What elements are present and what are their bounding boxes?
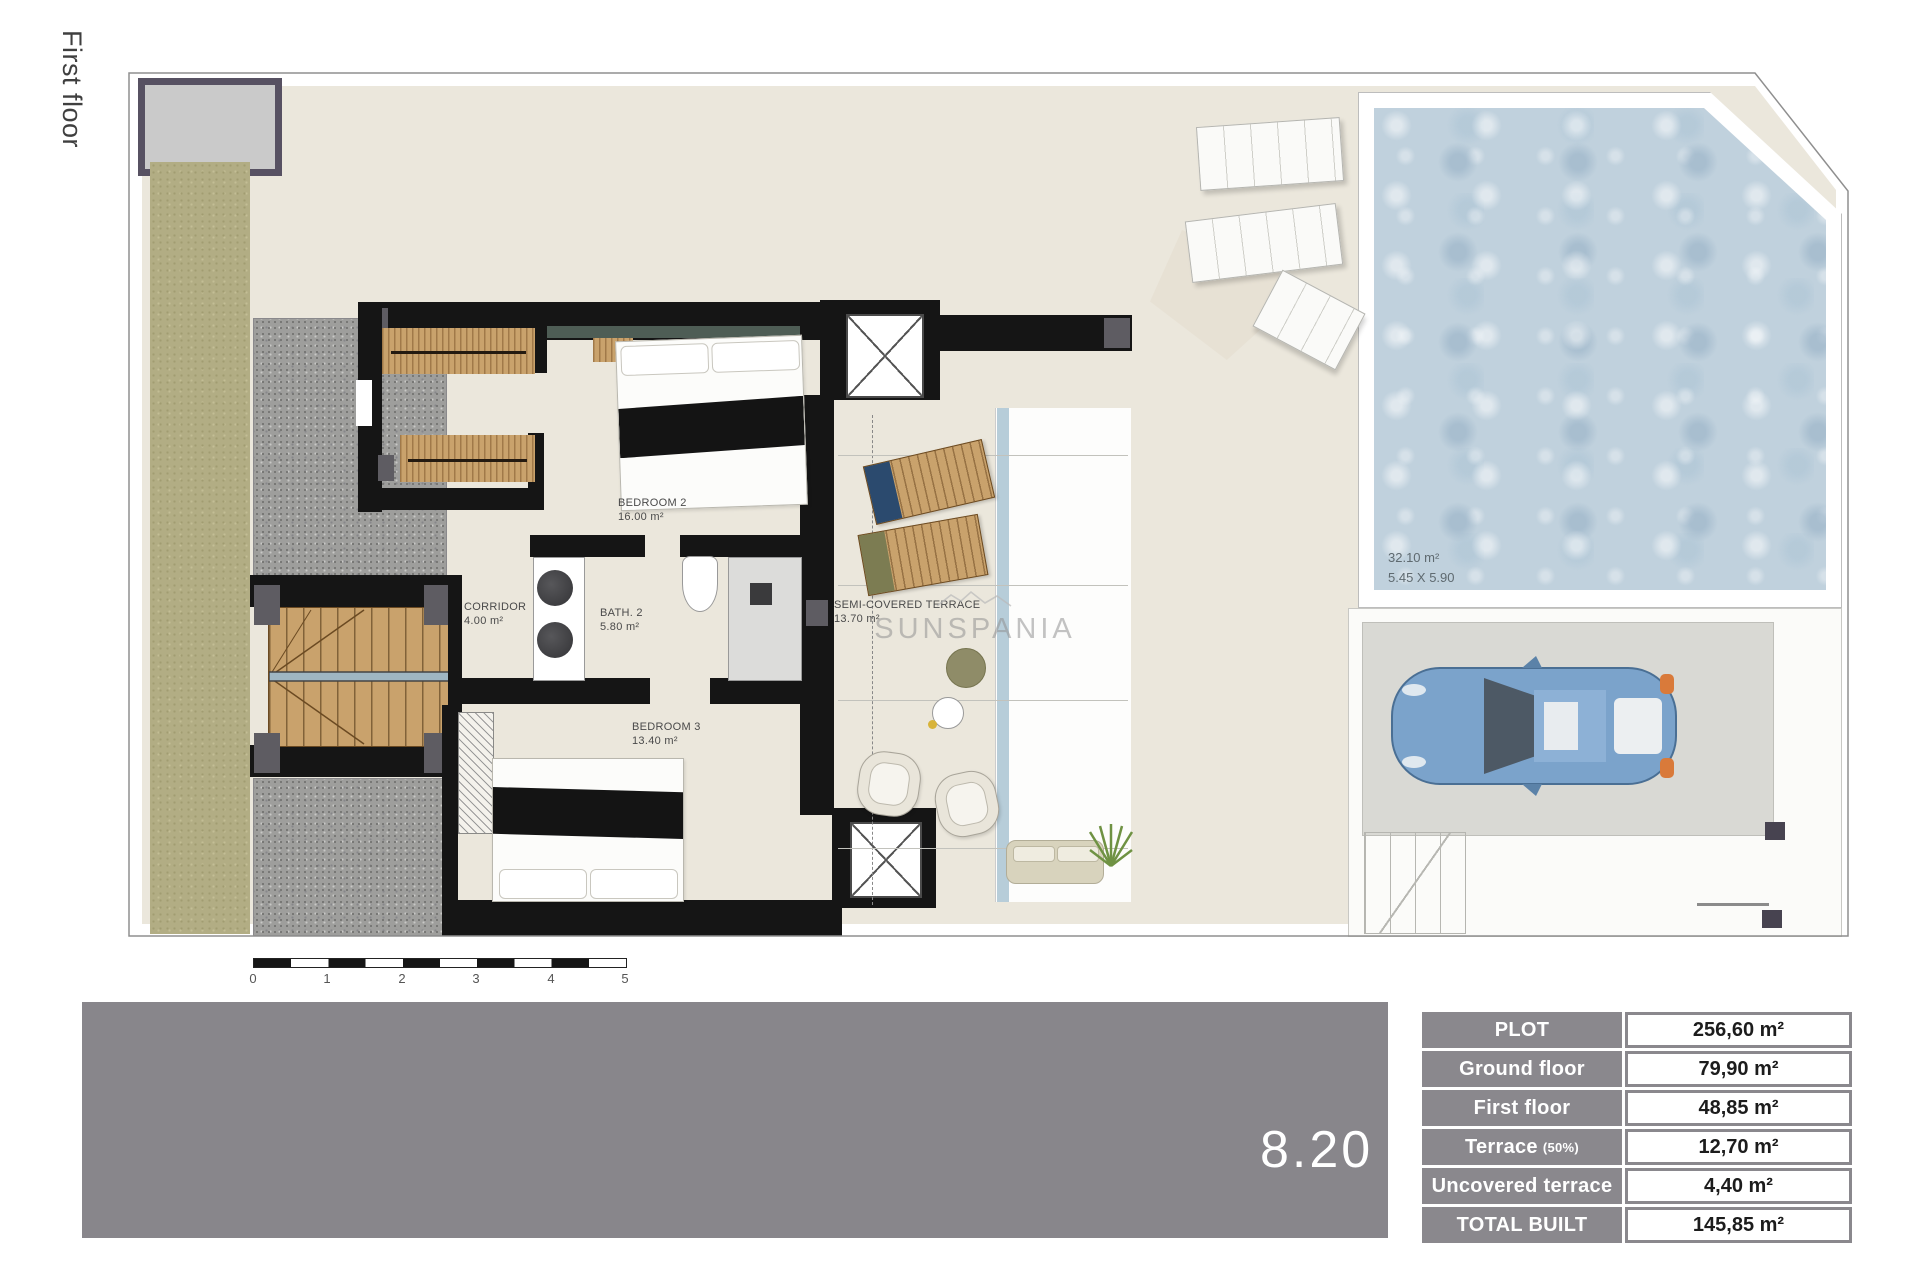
pillow xyxy=(620,343,709,376)
column xyxy=(1104,318,1130,348)
scale-tick: 3 xyxy=(472,971,479,986)
toilet xyxy=(682,556,718,612)
room-name: BATH. 2 xyxy=(600,606,643,620)
wall-segment xyxy=(442,900,842,936)
bed-bedroom2 xyxy=(615,335,808,511)
sofa-cushion xyxy=(1013,846,1055,862)
row-value: 145,85 m² xyxy=(1625,1207,1852,1243)
wardrobe-rail xyxy=(391,351,526,354)
table-row: Ground floor 79,90 m² xyxy=(1422,1051,1852,1087)
row-label: Uncovered terrace xyxy=(1422,1168,1622,1204)
washbasin xyxy=(537,622,573,658)
room-label-terrace: SEMI-COVERED TERRACE 13.70 m² xyxy=(834,598,980,627)
table-row: Terrace (50%) 12,70 m² xyxy=(1422,1129,1852,1165)
room-area: 4.00 m² xyxy=(464,614,526,628)
floor-plan-page: First floor xyxy=(0,0,1920,1280)
door-opening xyxy=(645,535,680,557)
scale-tick: 1 xyxy=(323,971,330,986)
row-label: TOTAL BUILT xyxy=(1422,1207,1622,1243)
pool-dimensions: 5.45 X 5.90 xyxy=(1388,568,1455,588)
table-row: PLOT 256,60 m² xyxy=(1422,1012,1852,1048)
wardrobe-rail xyxy=(408,459,527,462)
wardrobe xyxy=(382,328,535,374)
plan-number: 8.20 xyxy=(1260,1120,1373,1180)
table-row: Uncovered terrace 4,40 m² xyxy=(1422,1168,1852,1204)
scale-tick: 4 xyxy=(547,971,554,986)
table-row: First floor 48,85 m² xyxy=(1422,1090,1852,1126)
grass-strip xyxy=(150,162,250,934)
table-decor xyxy=(928,720,937,729)
room-area: 13.40 m² xyxy=(632,734,701,748)
row-value: 79,90 m² xyxy=(1625,1051,1852,1087)
bed-bedroom3 xyxy=(492,758,684,902)
room-name: BEDROOM 3 xyxy=(632,720,701,734)
pool-area: 32.10 m² xyxy=(1388,548,1455,568)
scale-tick: 5 xyxy=(621,971,628,986)
column xyxy=(806,600,828,626)
pillow xyxy=(499,869,587,899)
wall-segment xyxy=(448,678,530,704)
row-value: 12,70 m² xyxy=(1625,1129,1852,1165)
shower-head xyxy=(750,583,772,605)
sun-lounger xyxy=(1196,117,1344,191)
glass-railing xyxy=(997,408,1009,902)
areas-table: PLOT 256,60 m² Ground floor 79,90 m² Fir… xyxy=(1422,1012,1852,1246)
shaft-xbox xyxy=(850,822,922,898)
exterior-steps xyxy=(1364,832,1466,934)
column xyxy=(254,733,280,773)
room-name: BEDROOM 2 xyxy=(618,496,687,510)
staircase xyxy=(268,607,450,747)
room-name: SEMI-COVERED TERRACE xyxy=(834,598,980,612)
room-label-corridor: CORRIDOR 4.00 m² xyxy=(464,600,526,629)
room-label-bedroom2: BEDROOM 2 16.00 m² xyxy=(618,496,687,525)
table-row: TOTAL BUILT 145,85 m² xyxy=(1422,1207,1852,1243)
grass-plant xyxy=(1086,822,1136,870)
bottom-band: 8.20 xyxy=(82,1002,1388,1238)
column xyxy=(424,585,450,625)
row-value: 4,40 m² xyxy=(1625,1168,1852,1204)
scale-bar: 0 1 2 3 4 5 xyxy=(253,958,625,992)
row-label-suffix: (50%) xyxy=(1543,1140,1579,1155)
row-label: Ground floor xyxy=(1422,1051,1622,1087)
room-area: 5.80 m² xyxy=(600,620,643,634)
room-label-bedroom3: BEDROOM 3 13.40 m² xyxy=(632,720,701,749)
wall-segment xyxy=(535,323,547,373)
wardrobe xyxy=(400,435,535,482)
room-label-bath2: BATH. 2 5.80 m² xyxy=(600,606,643,635)
column xyxy=(1762,910,1782,928)
row-label: PLOT xyxy=(1422,1012,1622,1048)
car-top-view xyxy=(1384,650,1684,802)
scale-tick: 0 xyxy=(249,971,256,986)
door-opening xyxy=(650,678,710,704)
pouf xyxy=(946,648,986,688)
row-value: 256,60 m² xyxy=(1625,1012,1852,1048)
washbasin xyxy=(537,570,573,606)
row-label-text: Terrace xyxy=(1465,1136,1538,1159)
wardrobe-hatch xyxy=(458,712,494,834)
floor-title: First floor xyxy=(56,30,87,148)
chair-cushion xyxy=(866,760,911,807)
room-area: 13.70 m² xyxy=(834,612,980,626)
pillow xyxy=(711,340,800,373)
row-label: First floor xyxy=(1422,1090,1622,1126)
shaft-xbox xyxy=(846,314,924,398)
floor-plan: BEDROOM 2 16.00 m² CORRIDOR 4.00 m² BATH… xyxy=(128,72,1850,938)
column xyxy=(1765,822,1785,840)
row-value: 48,85 m² xyxy=(1625,1090,1852,1126)
bed-throw xyxy=(493,787,683,839)
chair-cushion xyxy=(943,779,991,828)
column xyxy=(254,585,280,625)
window-opening xyxy=(356,380,372,426)
pool xyxy=(1374,108,1826,590)
gravel-patch-lower xyxy=(253,778,447,936)
scale-bar-segments xyxy=(253,958,627,968)
pool-label: 32.10 m² 5.45 X 5.90 xyxy=(1388,548,1455,587)
boundary-wall-line xyxy=(1697,903,1769,906)
room-name: CORRIDOR xyxy=(464,600,526,614)
wall-segment xyxy=(358,488,544,510)
row-label: Terrace (50%) xyxy=(1422,1129,1622,1165)
room-area: 16.00 m² xyxy=(618,510,687,524)
scale-tick: 2 xyxy=(398,971,405,986)
shower xyxy=(728,557,802,681)
bed-throw xyxy=(618,396,805,458)
pillow xyxy=(590,869,678,899)
pergola-beam xyxy=(838,700,1128,701)
column xyxy=(378,455,394,481)
